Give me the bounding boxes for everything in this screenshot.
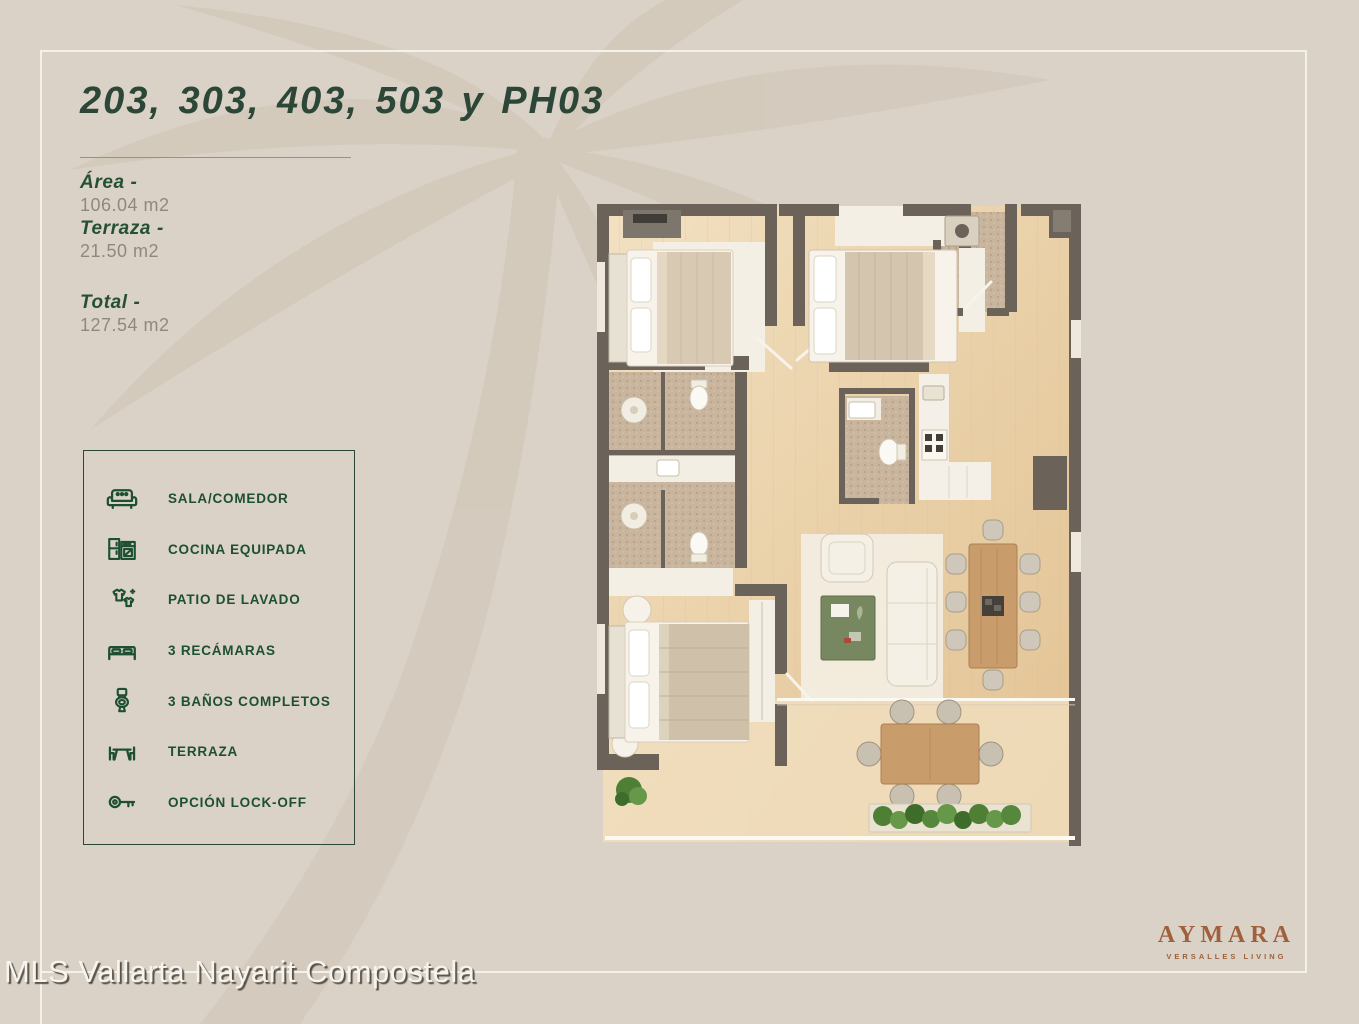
legend-row-terraza: TERRAZA (105, 733, 238, 769)
floor-plan-image (597, 204, 1081, 846)
legend-label-cocina: COCINA EQUIPADA (168, 542, 307, 557)
terrace-icon (105, 734, 139, 768)
legend-row-banos: 3 BAÑOS COMPLETOS (105, 683, 331, 719)
mls-watermark: MLS Vallarta Nayarit Compostela (4, 954, 476, 990)
legend-label-banos: 3 BAÑOS COMPLETOS (168, 694, 331, 709)
laundry-icon (105, 582, 139, 616)
brand-name: AYMARA (1158, 922, 1295, 949)
brand-logo: AYMARA VERSALLES LIVING (1158, 922, 1295, 961)
terraza-value: 21.50 m2 (80, 240, 170, 262)
brand-tagline: VERSALLES LIVING (1158, 952, 1295, 961)
legend-row-patio: PATIO DE LAVADO (105, 581, 301, 617)
legend-label-patio: PATIO DE LAVADO (168, 592, 301, 607)
legend-label-lockoff: OPCIÓN LOCK-OFF (168, 795, 307, 810)
area-label: Área - (80, 172, 170, 194)
legend-row-recamaras: 3 RECÁMARAS (105, 632, 276, 668)
title-divider (80, 157, 351, 158)
sofa-icon (105, 481, 139, 515)
kitchen-icon (105, 532, 139, 566)
legend-row-lockoff: OPCIÓN LOCK-OFF (105, 784, 307, 820)
toilet-icon (105, 684, 139, 718)
legend-row-cocina: COCINA EQUIPADA (105, 531, 307, 567)
total-value: 127.54 m2 (80, 314, 170, 336)
legend-label-sala: SALA/COMEDOR (168, 491, 289, 506)
page-title: 203, 303, 403, 503 y PH03 (80, 80, 604, 123)
amenities-legend: SALA/COMEDOR COCINA EQUIPADA (83, 450, 355, 845)
total-label: Total - (80, 292, 170, 314)
area-specs: Área - 106.04 m2 Terraza - 21.50 m2 Tota… (80, 172, 170, 338)
key-icon (105, 785, 139, 819)
bed-icon (105, 633, 139, 667)
area-value: 106.04 m2 (80, 194, 170, 216)
legend-label-recamaras: 3 RECÁMARAS (168, 643, 276, 658)
legend-label-terraza: TERRAZA (168, 744, 238, 759)
bedroom-2 (809, 250, 957, 362)
terraza-label: Terraza - (80, 218, 170, 240)
legend-row-sala: SALA/COMEDOR (105, 480, 289, 516)
